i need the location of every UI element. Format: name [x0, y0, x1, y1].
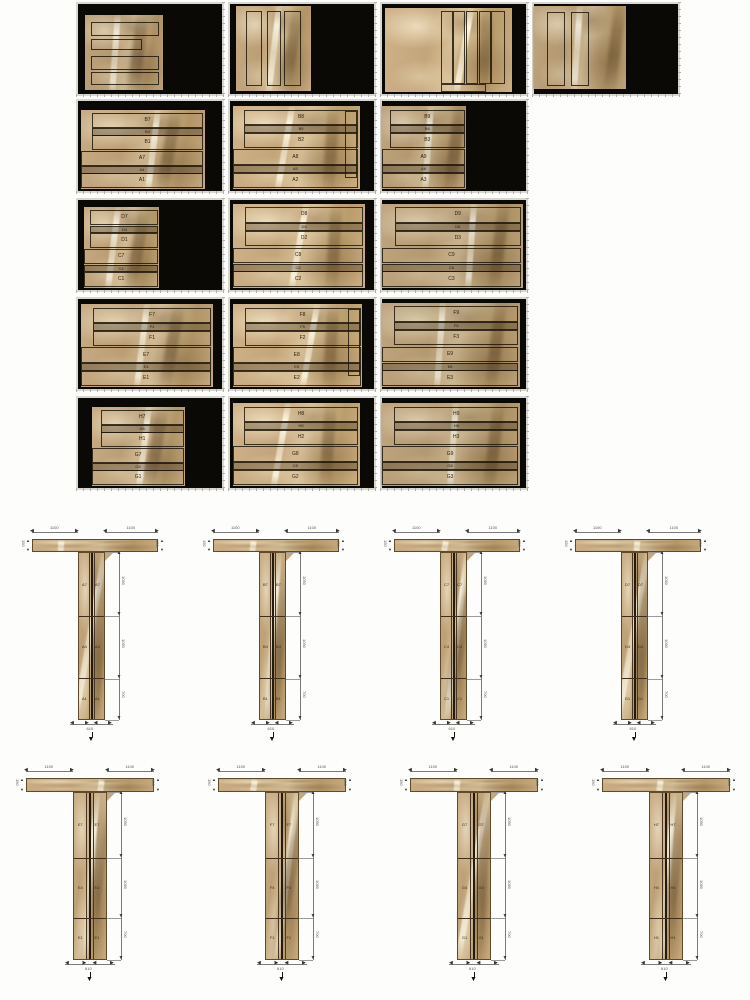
stem-piece-label: G7: [462, 823, 467, 827]
segment-dimension-value: 700: [699, 931, 703, 938]
stem-piece-label: G7: [478, 823, 483, 827]
dim-arrow-icon: ◀: [432, 721, 436, 726]
dim-arrow-tick-icon: ▼: [479, 716, 484, 721]
stem-piece-label: A1: [95, 697, 100, 701]
stem-joint-line: [662, 793, 663, 959]
wing-dimension-line: [26, 771, 73, 772]
dim-arrow-left-icon: ◀: [105, 768, 109, 773]
dim-arrow-left-icon: ◀: [489, 768, 493, 773]
dim-arrow-left-icon: ◀: [392, 529, 396, 534]
dim-arrow-up-icon: ▲: [404, 778, 408, 782]
cut-strip-label: G6: [447, 464, 452, 468]
stem-dimension-chain: [662, 552, 663, 720]
dim-arrow-tick-icon: ▲: [311, 791, 316, 796]
column-8: H7H7H4H4H1H1◀▶1100◀▶1100▲▼150▲▼150▲▼▼▼10…: [590, 760, 750, 990]
cut-strip-outline: [479, 11, 491, 84]
dim-arrow-left-icon: ◀: [297, 768, 301, 773]
stem-dimension-chain: [121, 792, 122, 960]
marble-slab: F9F6F3E9E6E3: [382, 303, 520, 388]
end-dimension-value: 150: [21, 540, 25, 547]
panel-ruler-right: [374, 2, 377, 96]
end-dimension-value: 150: [564, 540, 568, 547]
dim-arrow-icon: ◀: [477, 961, 481, 966]
panel-ruler-bottom: [76, 488, 224, 491]
flange-stem-chamfer: [105, 552, 114, 561]
dim-arrow-icon: ◀: [285, 961, 289, 966]
end-dimension-value: 150: [343, 779, 347, 786]
stem-piece-label: F4: [270, 886, 275, 890]
drawing-sheet: B7B4B1A7A4A1B8B5B2A8A5A2B9B6B3A9A6A3D7D4…: [0, 0, 750, 1000]
wing-dimension-line: [107, 771, 154, 772]
dim-arrow-icon: ◀: [669, 961, 673, 966]
bottom-dimension-line: [65, 964, 115, 965]
dim-arrow-icon: ◀: [613, 721, 617, 726]
cut-strip-label: D7: [121, 215, 127, 220]
cut-strip-label: E2: [294, 376, 300, 381]
marble-slab: B9B6B3A9A6A3: [382, 106, 466, 189]
cut-strip: F8: [245, 308, 361, 323]
dim-arrow-down-icon: ▼: [388, 548, 392, 552]
dim-arrow-tick-icon: ▼: [119, 854, 124, 859]
dim-arrow-icon: ◀: [637, 721, 641, 726]
wing-dimension-value: 1100: [510, 765, 519, 769]
stem-segment-divider: [441, 678, 466, 679]
stem-dimension-chain: [505, 792, 506, 960]
marble-slab: H7H4H1G7G4G1: [92, 407, 184, 486]
dim-arrow-up-icon: ▲: [522, 539, 526, 543]
panel-ruler-bottom: [380, 191, 528, 194]
wing-dimension-line: [394, 532, 440, 533]
cut-strip: D9: [395, 207, 521, 223]
cut-strip-label: F7: [149, 313, 155, 318]
cut-strip-label: F2: [300, 336, 306, 341]
cut-strip: E2: [233, 371, 361, 386]
cut-strip: B1: [92, 135, 203, 150]
cut-strip: F7: [93, 308, 212, 323]
cut-strip-label: E5: [294, 365, 299, 369]
dim-arrow-right-icon: ▶: [151, 768, 155, 773]
dim-arrow-right-icon: ▶: [343, 768, 347, 773]
panel-ruler-right: [526, 99, 529, 193]
panel-ruler-right: [374, 198, 377, 292]
dim-arrow-up-icon: ▲: [207, 539, 211, 543]
sheet-4-3: F9F6F3E9E6E3: [380, 297, 528, 391]
cut-strip-outline: [453, 11, 465, 84]
dim-arrow-right-icon: ▶: [727, 768, 731, 773]
cut-strip: C1: [84, 272, 159, 287]
dim-arrow-icon: ◀: [93, 961, 97, 966]
panel-ruler-bottom: [76, 389, 224, 392]
sheet-A: [76, 2, 224, 96]
end-dimension-value: 150: [591, 779, 595, 786]
cut-strip-label: D1: [121, 238, 127, 243]
dim-arrow-up-icon: ▲: [569, 539, 573, 543]
stem-piece-label: A4: [95, 645, 100, 649]
dim-arrow-icon: ▶: [110, 961, 114, 966]
stem-piece-label: F7: [286, 823, 291, 827]
cut-strip-label: B5: [299, 127, 304, 131]
cut-strip-label: H1: [139, 437, 145, 442]
column-stem: G7G7G4G4G1G1: [457, 792, 491, 960]
stem-piece-label: E1: [78, 936, 83, 940]
column-1: A7A7A4A4A1A1◀▶1100◀▶1100▲▼150▲▼150▲▼▼▼10…: [22, 527, 182, 749]
column-3: C7C7C4C4C1C1◀▶1100◀▶1100▲▼150▲▼150▲▼▼▼10…: [384, 527, 544, 749]
bottom-dimension-value: 610: [277, 967, 284, 971]
stem-piece-label: G4: [478, 886, 483, 890]
cut-strip-label: C4: [119, 267, 124, 271]
cut-strip-label: E9: [447, 352, 453, 357]
cut-strip-label: D9: [455, 212, 461, 217]
segment-dimension-value: 1050: [302, 576, 306, 585]
segment-dimension-value: 700: [315, 931, 319, 938]
column-2: B7B7B4B4B1B1◀▶1100◀▶1100▲▼150▲▼150▲▼▼▼10…: [203, 527, 363, 749]
dim-arrow-left-icon: ◀: [103, 529, 107, 534]
stem-piece-label: A1: [82, 697, 87, 701]
cut-strip: H9: [394, 407, 518, 422]
stem-piece-label: F4: [286, 886, 291, 890]
segment-dimension-value: 1050: [315, 817, 319, 826]
wing-dimension-value: 1100: [127, 526, 136, 530]
end-dimension-value: 150: [727, 779, 731, 786]
column-flange: [602, 778, 730, 792]
cut-strip: G3: [382, 470, 518, 485]
dim-arrow-tick-icon: ▲: [660, 551, 665, 556]
dim-arrow-down-icon: ▼: [20, 788, 24, 792]
stem-piece-label: B4: [276, 645, 281, 649]
dim-arrow-tick-icon: ▼: [117, 716, 122, 721]
stem-piece-label: D7: [638, 583, 643, 587]
cut-strip-label: G8: [292, 452, 299, 457]
cut-strip-side: [345, 111, 357, 178]
stem-joint-line: [278, 793, 279, 959]
panel-ruler-bottom: [228, 290, 376, 293]
segment-dimension-value: 700: [664, 691, 668, 698]
wing-dimension-line: [602, 771, 649, 772]
stem-joint-line: [270, 553, 271, 719]
stem-piece-label: A7: [95, 583, 100, 587]
cut-strip-label: F1: [149, 336, 155, 341]
wing-dimension-value: 1100: [50, 526, 59, 530]
cut-strip: A2: [233, 173, 358, 188]
marble-slab: H8H5H2G8G5G2: [233, 403, 360, 486]
column-flange: [32, 539, 158, 552]
panel-ruler-right: [222, 396, 225, 490]
cut-strip-label: C6: [449, 266, 454, 270]
cut-strip: C8: [233, 248, 363, 264]
cut-strip-label: E8: [294, 353, 300, 358]
cut-strip: H7: [101, 410, 184, 425]
cut-strip-label: D6: [455, 225, 460, 229]
stem-dimension-chain: [119, 552, 120, 720]
end-dimension-value: 150: [336, 540, 340, 547]
cut-strip-label: B8: [298, 115, 304, 120]
segment-dimension-value: 1050: [507, 817, 511, 826]
stem-dimension-chain: [300, 552, 301, 720]
panel-ruler-bottom: [380, 94, 528, 97]
stem-piece-label: E7: [78, 823, 83, 827]
cut-strip-label: C1: [118, 277, 124, 282]
dim-arrow-down-icon: ▼: [156, 788, 160, 792]
cut-strip-outline: [547, 12, 565, 85]
cut-strip-label: D8: [301, 212, 307, 217]
stem-piece-label: D1: [625, 697, 630, 701]
north-mark-icon: ▼: [470, 976, 477, 983]
dim-arrow-icon: ◀: [275, 721, 279, 726]
column-6: F7F7F4F4F1F1◀▶1100◀▶1100▲▼150▲▼150▲▼▼▼10…: [206, 760, 374, 990]
north-mark-icon: ▼: [662, 976, 669, 983]
cut-strip: C7: [84, 249, 159, 264]
sheet-2-3: B9B6B3A9A6A3: [380, 99, 528, 193]
cut-layout-grid: B7B4B1A7A4A1B8B5B2A8A5A2B9B6B3A9A6A3D7D4…: [0, 0, 750, 505]
cut-strip-label: H3: [453, 435, 459, 440]
stem-segment-divider: [622, 678, 647, 679]
column-drawings-row-1: A7A7A4A4A1A1◀▶1100◀▶1100▲▼150▲▼150▲▼▼▼10…: [0, 527, 750, 752]
column-stem: E7E7E4E4E1E1: [73, 792, 107, 960]
segment-dimension-value: 700: [302, 691, 306, 698]
column-stem: H7H7H4H4H1H1: [649, 792, 683, 960]
segment-dimension-value: 1050: [483, 576, 487, 585]
dim-arrow-right-icon: ▶: [262, 768, 266, 773]
dim-arrow-icon: ▶: [686, 961, 690, 966]
cut-strip-label: C8: [295, 253, 301, 258]
stem-piece-label: G4: [462, 886, 467, 890]
stem-piece-label: F7: [270, 823, 275, 827]
column-flange: [26, 778, 154, 792]
dim-arrow-up-icon: ▲: [26, 539, 30, 543]
panel-ruler-right: [222, 198, 225, 292]
stem-piece-label: H7: [654, 823, 659, 827]
dim-arrow-tick-icon: ▲: [119, 791, 124, 796]
cut-strip-label: F6: [454, 324, 459, 328]
cut-strip: B7: [92, 113, 203, 128]
dim-arrow-tick-icon: ▲: [503, 791, 508, 796]
panel-ruler-bottom: [228, 94, 376, 97]
dim-arrow-tick-icon: ▼: [117, 675, 122, 680]
wing-dimension-value: 1100: [308, 526, 317, 530]
cut-strip: E9: [382, 347, 518, 363]
cut-strip-label: A8: [292, 155, 298, 160]
stem-joint-line: [86, 793, 87, 959]
wing-dimension-line: [213, 532, 259, 533]
marble-vein: [453, 778, 460, 791]
wing-dimension-value: 1100: [429, 765, 438, 769]
end-dimension-value: 150: [15, 779, 19, 786]
column-7: G7G7G4G4G1G1◀▶1100◀▶1100▲▼150▲▼150▲▼▼▼10…: [398, 760, 566, 990]
stem-segment-divider: [458, 858, 490, 859]
cut-strip: A9: [382, 149, 465, 164]
stem-piece-label: D4: [638, 645, 643, 649]
north-mark-icon: ▼: [450, 736, 457, 743]
stem-piece-label: B7: [276, 583, 281, 587]
stem-piece-label: C1: [457, 697, 462, 701]
dim-arrow-down-icon: ▼: [341, 548, 345, 552]
cut-strip-label: B6: [425, 127, 430, 131]
marble-slab: B7B4B1A7A4A1: [81, 110, 205, 189]
dim-arrow-up-icon: ▲: [212, 778, 216, 782]
cut-strip-label: B9: [424, 115, 430, 120]
north-mark-icon: ▼: [269, 736, 276, 743]
stem-piece-label: E4: [78, 886, 83, 890]
dim-arrow-right-icon: ▶: [256, 529, 260, 534]
wing-dimension-value: 1100: [670, 526, 679, 530]
stem-piece-label: H1: [670, 936, 675, 940]
dim-arrow-tick-icon: ▼: [298, 675, 303, 680]
flange-stem-chamfer: [491, 792, 500, 801]
segment-dimension-value: 1050: [302, 639, 306, 648]
dim-arrow-down-icon: ▼: [404, 788, 408, 792]
wing-dimension-value: 1100: [621, 765, 630, 769]
cut-strip-label: C9: [448, 253, 454, 258]
marble-slab: F8F5F2E8E5E2: [233, 304, 363, 387]
flange-stem-chamfer: [299, 792, 308, 801]
stem-piece-label: F1: [270, 936, 275, 940]
wing-dimension-line: [32, 532, 78, 533]
dim-arrow-icon: ◀: [449, 961, 453, 966]
dim-arrow-up-icon: ▲: [732, 778, 736, 782]
dim-arrow-icon: ◀: [456, 721, 460, 726]
stem-joint-line: [89, 793, 91, 959]
cut-strip: F2: [245, 331, 361, 346]
north-mark-icon: ▼: [88, 736, 95, 743]
wing-dimension-value: 1100: [318, 765, 327, 769]
dim-arrow-icon: ▶: [470, 721, 474, 726]
cut-strip-outline: [91, 22, 158, 36]
dim-arrow-icon: ▶: [494, 961, 498, 966]
dim-arrow-up-icon: ▲: [596, 778, 600, 782]
wing-dimension-value: 1100: [593, 526, 602, 530]
sheet-C: [380, 2, 528, 96]
cut-strip: G9: [382, 446, 518, 461]
cut-strip: B3: [390, 133, 465, 148]
dim-arrow-down-icon: ▼: [540, 788, 544, 792]
stem-piece-label: C4: [444, 645, 449, 649]
cut-strip-label: F3: [453, 335, 459, 340]
marble-slab: H9H6H3G9G6G3: [382, 403, 520, 486]
stem-joint-line: [275, 553, 276, 719]
panel-ruler-right: [678, 2, 681, 96]
sheet-B: [228, 2, 376, 96]
cut-strip-label: A7: [139, 156, 145, 161]
cut-strip: G2: [233, 470, 358, 485]
panel-ruler-bottom: [76, 191, 224, 194]
dim-arrow-left-icon: ◀: [216, 768, 220, 773]
wing-dimension-line: [218, 771, 265, 772]
bottom-dimension-value: 610: [268, 727, 275, 731]
stem-joint-line: [281, 793, 283, 959]
wing-dimension-value: 1100: [412, 526, 421, 530]
stem-piece-label: H4: [670, 886, 675, 890]
dim-arrow-left-icon: ◀: [646, 529, 650, 534]
dim-arrow-right-icon: ▶: [70, 768, 74, 773]
end-dimension-value: 150: [155, 540, 159, 547]
marble-slab: [236, 6, 311, 92]
stem-piece-label: E1: [94, 936, 99, 940]
dim-arrow-left-icon: ◀: [211, 529, 215, 534]
cut-strip: D3: [395, 231, 521, 247]
bottom-dimension-value: 610: [87, 727, 94, 731]
dim-arrow-left-icon: ◀: [600, 768, 604, 773]
dim-arrow-tick-icon: ▲: [479, 551, 484, 556]
cut-strip-outline: [91, 72, 158, 85]
cut-strip-label: H5: [298, 424, 303, 428]
marble-vein: [249, 539, 256, 552]
cut-strip-label: A6: [421, 167, 426, 171]
dim-arrow-icon: ▶: [651, 721, 655, 726]
cut-strip: C2: [233, 271, 363, 287]
stem-segment-divider: [458, 918, 490, 919]
cut-strip: E1: [81, 371, 211, 386]
dim-arrow-right-icon: ▶: [437, 529, 441, 534]
segment-dimension-value: 700: [121, 691, 125, 698]
cut-strip-label: A4: [139, 168, 144, 172]
segment-dimension-value: 700: [483, 691, 487, 698]
marble-vein: [57, 539, 64, 551]
sheet-3-2: D8D5D2C8C5C2: [228, 198, 376, 292]
dim-arrow-right-icon: ▶: [75, 529, 79, 534]
wing-dimension-value: 1100: [231, 526, 240, 530]
dim-arrow-icon: ◀: [65, 961, 69, 966]
sheet-5-1: H7H4H1G7G4G1: [76, 396, 224, 490]
cut-strip-label: B4: [145, 130, 150, 134]
dim-arrow-tick-icon: ▼: [298, 612, 303, 617]
end-dimension-value: 150: [535, 779, 539, 786]
end-dimension-value: 150: [151, 779, 155, 786]
wing-dimension-line: [648, 532, 701, 533]
segment-dimension-value: 1050: [123, 880, 127, 889]
cut-strip: F1: [93, 331, 212, 346]
stem-joint-line: [285, 793, 286, 959]
sheet-3-1: D7D4D1C7C4C1: [76, 198, 224, 292]
dim-arrow-icon: ◀: [94, 721, 98, 726]
panel-ruler-right: [222, 2, 225, 96]
column-stem: B7B7B4B4B1B1: [259, 552, 286, 720]
wing-dimension-line: [467, 532, 520, 533]
dim-arrow-right-icon: ▶: [698, 529, 702, 534]
dim-arrow-up-icon: ▲: [703, 539, 707, 543]
marble-vein: [634, 539, 641, 551]
dim-arrow-up-icon: ▲: [156, 778, 160, 782]
panel-ruler-bottom: [228, 488, 376, 491]
column-flange: [218, 778, 346, 792]
stem-joint-line: [632, 553, 633, 719]
cut-strip-label: G3: [447, 475, 454, 480]
cut-strip-label: G1: [135, 475, 142, 480]
panel-ruler-right: [526, 297, 529, 391]
north-mark-icon: ▼: [278, 976, 285, 983]
stem-piece-label: C4: [457, 645, 462, 649]
cut-strip: A7: [81, 151, 203, 166]
segment-dimension-value: 1050: [699, 817, 703, 826]
stem-segment-divider: [74, 858, 106, 859]
panel-ruler-bottom: [380, 389, 528, 392]
stem-joint-line: [456, 553, 457, 719]
panel-ruler-right: [222, 297, 225, 391]
stem-piece-label: D1: [638, 697, 643, 701]
end-dimension-value: 150: [517, 540, 521, 547]
end-dimension-value: 150: [202, 540, 206, 547]
north-mark-icon: ▼: [631, 736, 638, 743]
panel-ruler-bottom: [228, 389, 376, 392]
column-flange: [410, 778, 538, 792]
dim-arrow-tick-icon: ▼: [695, 914, 700, 919]
marble-vein: [441, 539, 449, 552]
panel-ruler-right: [526, 2, 529, 96]
column-stem: C7C7C4C4C1C1: [440, 552, 467, 720]
dim-arrow-down-icon: ▼: [212, 788, 216, 792]
cut-strip-label: E1: [143, 376, 149, 381]
wing-dimension-value: 1100: [237, 765, 246, 769]
column-stem: D7D7D4D4D1D1: [621, 552, 648, 720]
